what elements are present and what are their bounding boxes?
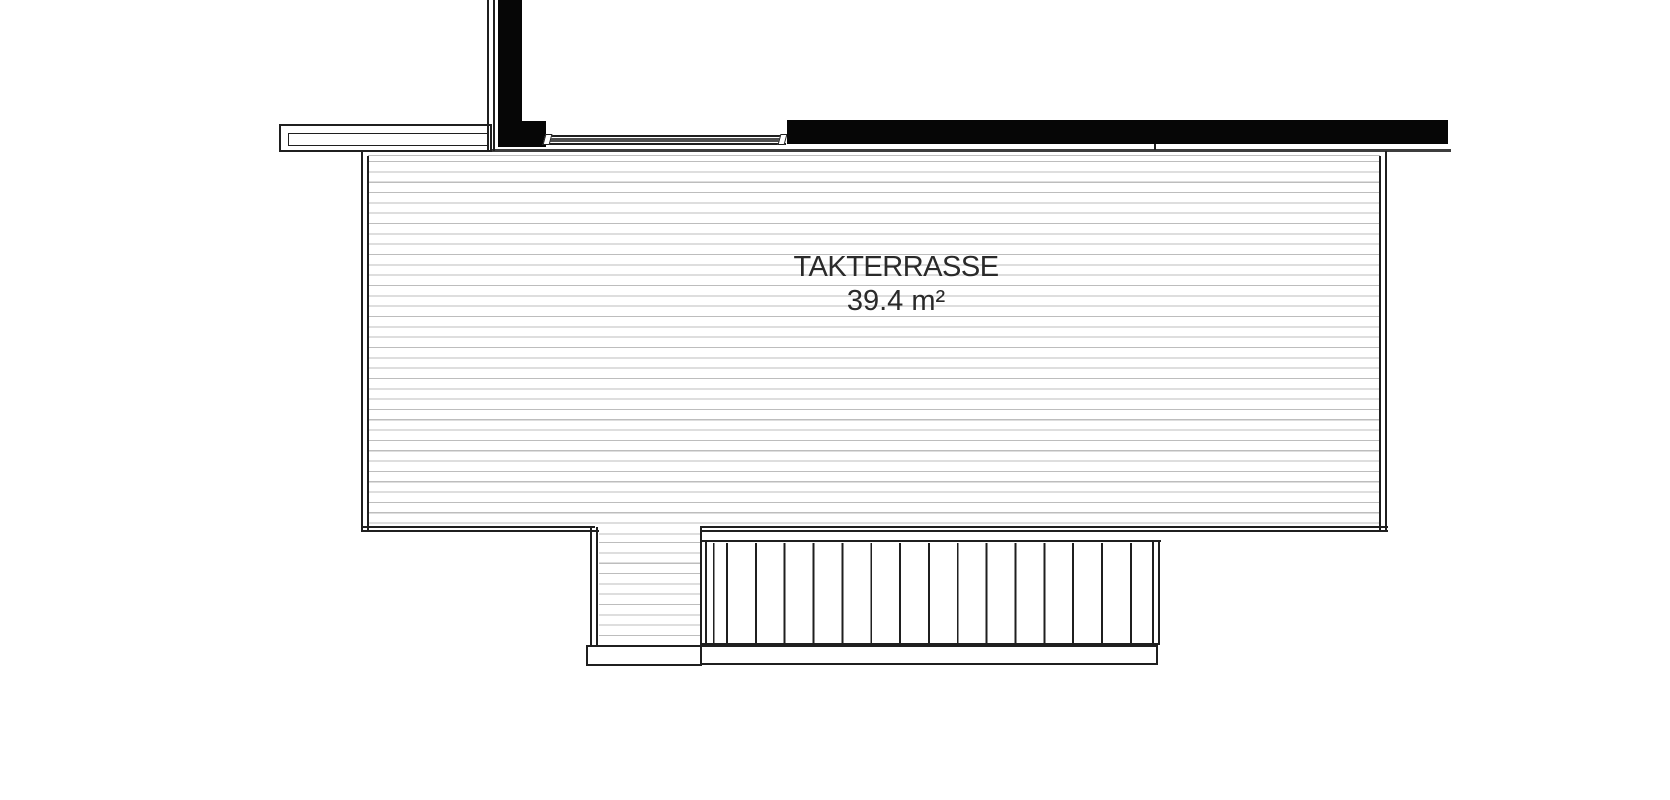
walkway-edge-left-inner	[596, 527, 598, 645]
partition-wall-line-inner	[493, 0, 495, 151]
landing-right	[700, 645, 1158, 665]
landing-left	[586, 645, 702, 666]
terrace-decking	[368, 152, 1380, 530]
room-area-text: 39.4 m²	[646, 284, 1146, 318]
wall-joint-line	[1154, 144, 1156, 150]
terrace-edge-bottom-right-inner	[700, 526, 1388, 528]
partition-wall-line-outer	[487, 0, 489, 151]
stairs-stringer-left-outer	[700, 527, 702, 645]
railing-inner	[288, 133, 488, 146]
terrace-edge-right-outer	[1385, 151, 1387, 532]
room-label: TAKTERRASSE 39.4 m²	[646, 250, 1146, 318]
terrace-edge-bottom-left-inner	[361, 526, 595, 528]
wall-black-top-right	[787, 120, 1448, 144]
stairs-stringer-right-inner	[1152, 541, 1154, 645]
stairs-top-edge	[700, 540, 1161, 542]
room-name-text: TAKTERRASSE	[646, 250, 1146, 284]
wall-black-foot	[498, 121, 546, 147]
terrace-edge-left-outer	[361, 151, 363, 532]
terrace-edge-right-inner	[1379, 156, 1381, 532]
floor-plan-canvas: TAKTERRASSE 39.4 m²	[0, 0, 1670, 800]
window-glazing	[549, 138, 783, 142]
walkway-edge-left-outer	[590, 527, 592, 645]
terrace-edge-bottom-right-outer	[700, 530, 1388, 532]
terrace-edge-bottom-left-outer	[361, 530, 599, 532]
terrace-edge-left-inner	[367, 156, 369, 532]
window-frame-bottom	[546, 143, 786, 145]
wall-black-vertical	[498, 0, 522, 125]
walkway-decking	[599, 532, 700, 644]
stairs-stringer-right-outer	[1158, 541, 1160, 645]
window-frame-top	[546, 135, 786, 137]
stairs-treads	[707, 543, 1153, 643]
